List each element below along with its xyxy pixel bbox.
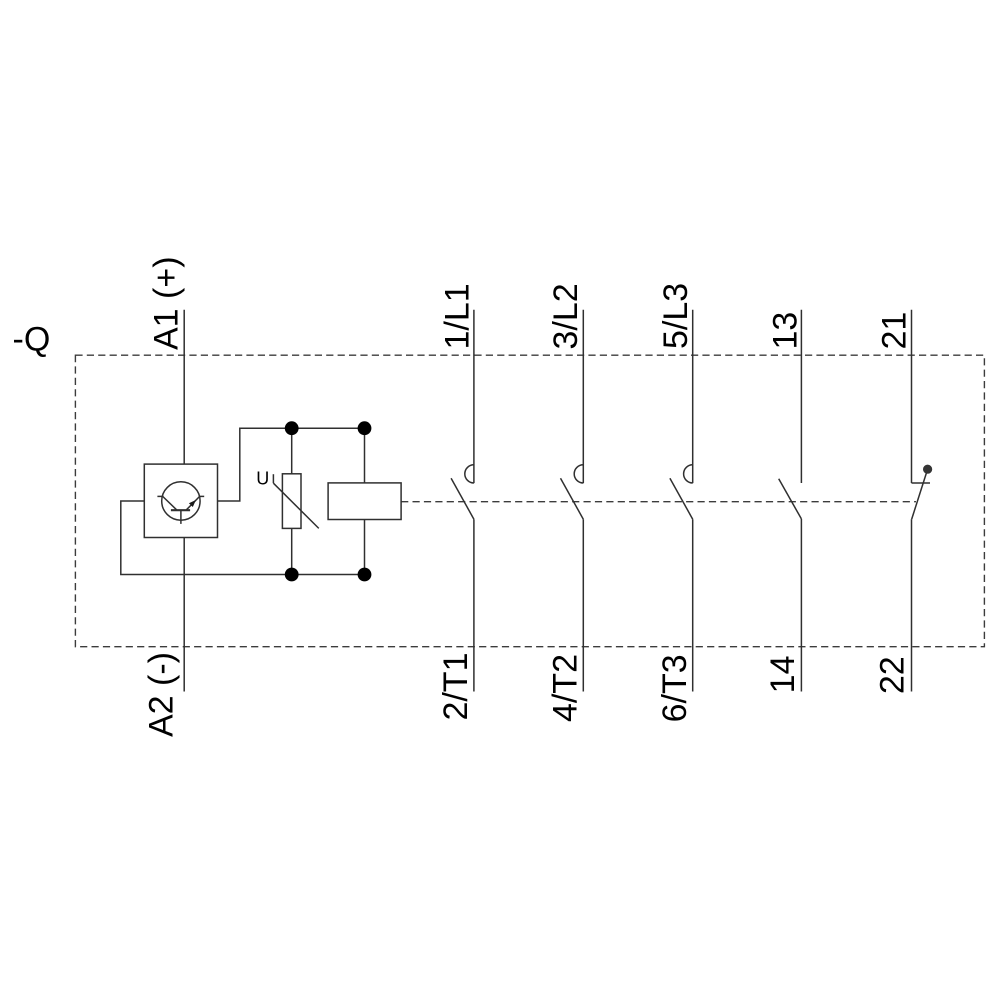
svg-text:4/T2: 4/T2 [547, 654, 585, 722]
svg-text:22: 22 [874, 656, 912, 694]
svg-text:A1 (+): A1 (+) [147, 256, 185, 350]
svg-text:5/L3: 5/L3 [657, 283, 695, 349]
svg-text:21: 21 [875, 312, 913, 350]
svg-text:6/T3: 6/T3 [656, 654, 694, 722]
svg-text:U: U [256, 469, 269, 489]
svg-text:1/L1: 1/L1 [438, 283, 476, 349]
svg-text:3/L2: 3/L2 [547, 283, 585, 349]
svg-text:A2 (-): A2 (-) [143, 652, 181, 737]
svg-text:14: 14 [764, 656, 802, 694]
svg-text:2/T1: 2/T1 [437, 653, 475, 721]
svg-text:13: 13 [766, 312, 804, 350]
svg-text:-Q: -Q [13, 321, 51, 359]
